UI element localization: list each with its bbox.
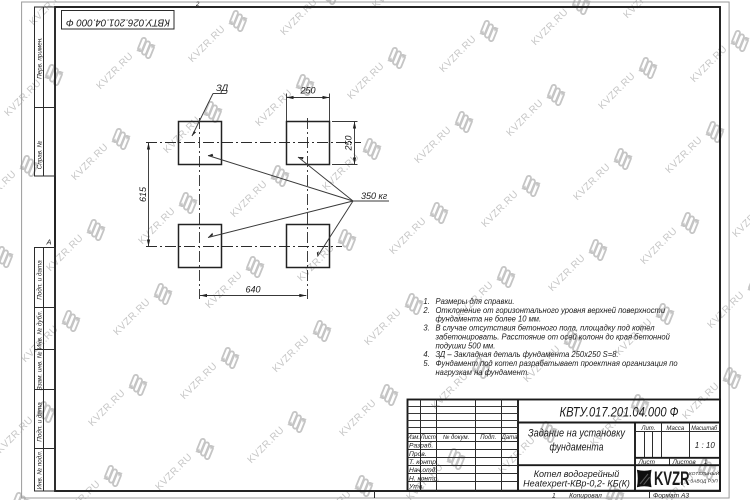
svg-text:KVZR.RU: KVZR.RU (572, 162, 613, 203)
svg-text:KVZR.RU: KVZR.RU (179, 361, 220, 402)
svg-text:KVZR.RU: KVZR.RU (204, 270, 245, 311)
svg-text:KVZR.RU: KVZR.RU (530, 7, 571, 48)
svg-text:250: 250 (344, 135, 354, 151)
svg-text:№ докум.: № докум. (443, 434, 469, 441)
svg-text:1: 1 (552, 493, 556, 500)
svg-text:Лист: Лист (419, 435, 435, 441)
svg-text:KVZR.RU: KVZR.RU (120, 0, 161, 1)
svg-text:Перв. примен.: Перв. примен. (37, 37, 44, 79)
svg-text:KVZR.RU: KVZR.RU (706, 290, 747, 331)
svg-text:KVZR.RU: KVZR.RU (70, 142, 111, 183)
svg-text:2: 2 (195, 2, 200, 8)
svg-text:Копировал: Копировал (569, 493, 602, 500)
svg-text:KVZR.RU: KVZR.RU (95, 51, 136, 92)
svg-text:KVZR.RU: KVZR.RU (622, 0, 663, 21)
svg-text:KVZR.RU: KVZR.RU (154, 452, 195, 493)
svg-text:Утв.: Утв. (408, 484, 424, 491)
svg-text:350 кг: 350 кг (361, 191, 388, 201)
svg-text:KVZR.RU: KVZR.RU (639, 226, 680, 267)
svg-text:Формат А3: Формат А3 (653, 493, 689, 500)
svg-text:Взам. инв. №: Взам. инв. № (37, 351, 44, 390)
svg-text:Пров.: Пров. (409, 451, 427, 458)
svg-text:KVZR.RU: KVZR.RU (505, 98, 546, 139)
svg-text:А: А (46, 238, 52, 247)
svg-text:KVZR.RU: KVZR.RU (254, 88, 295, 129)
svg-text:KVZR.RU: KVZR.RU (187, 24, 228, 65)
svg-text:Т. контр.: Т. контр. (409, 459, 438, 466)
svg-text:Масштаб: Масштаб (691, 426, 718, 432)
svg-text:Котел водогрейный: Котел водогрейный (534, 469, 620, 479)
svg-text:нагрузкам на фундамент.: нагрузкам на фундамент. (435, 367, 529, 377)
svg-text:Масса: Масса (666, 426, 684, 432)
svg-text:Подп. и дата: Подп. и дата (36, 402, 44, 442)
svg-text:615: 615 (138, 186, 148, 202)
svg-text:KVZR.RU: KVZR.RU (388, 216, 429, 257)
svg-text:KVZR.RU: KVZR.RU (271, 334, 312, 375)
svg-text:250: 250 (299, 86, 315, 96)
svg-text:KVZR.RU: KVZR.RU (296, 243, 337, 284)
svg-text:KVZR.RU: KVZR.RU (137, 206, 178, 247)
svg-text:Инв. № подл.: Инв. № подл. (36, 450, 44, 489)
svg-text:KVZR.RU: KVZR.RU (229, 179, 270, 220)
svg-text:KVZR.RU: KVZR.RU (112, 297, 153, 338)
svg-text:2.: 2. (422, 305, 429, 315)
svg-text:Задание на установку: Задание на установку (528, 428, 626, 440)
svg-text:KVZR.RU: KVZR.RU (480, 189, 521, 230)
svg-text:KVZR.RU: KVZR.RU (62, 479, 103, 500)
svg-text:KVZR: KVZR (654, 469, 690, 490)
svg-text:Нач.отд.: Нач.отд. (409, 466, 437, 474)
svg-text:Инв. № дубл.: Инв. № дубл. (36, 311, 44, 350)
svg-text:KVZR.RU: KVZR.RU (246, 425, 287, 466)
svg-text:640: 640 (245, 284, 260, 294)
svg-text:KVZR.RU: KVZR.RU (438, 34, 479, 75)
svg-text:KVZR.RU: KVZR.RU (681, 381, 722, 422)
svg-text:KVZR.RU: KVZR.RU (363, 307, 404, 348)
svg-text:КВТУ.017.201.04.000 Ф: КВТУ.017.201.04.000 Ф (560, 405, 679, 420)
svg-text:KVZR.RU: KVZR.RU (413, 125, 454, 166)
svg-text:KVZR.RU: KVZR.RU (731, 199, 750, 240)
svg-text:ЗАВОД РЭП: ЗАВОД РЭП (690, 479, 718, 485)
svg-text:1 : 10: 1 : 10 (695, 441, 716, 450)
svg-text:Изм.: Изм. (407, 435, 420, 441)
svg-text:Разраб.: Разраб. (409, 442, 433, 450)
svg-text:Н. контр.: Н. контр. (409, 475, 439, 482)
svg-text:Подп.: Подп. (480, 435, 496, 441)
svg-text:5.: 5. (423, 359, 429, 369)
svg-text:KVZR.RU: KVZR.RU (547, 253, 588, 294)
svg-text:KVZR.RU: KVZR.RU (87, 388, 128, 429)
svg-text:KVZR.RU: KVZR.RU (28, 0, 69, 28)
svg-text:KVZR.RU: KVZR.RU (0, 169, 19, 210)
svg-text:Подп. и дата: Подп. и дата (36, 260, 44, 300)
svg-text:3.: 3. (423, 323, 429, 333)
svg-text:Лит.: Лит. (640, 426, 655, 432)
svg-text:КВТУ.026.201.04.000 Ф: КВТУ.026.201.04.000 Ф (66, 17, 170, 29)
svg-text:KVZR.RU: KVZR.RU (0, 415, 36, 456)
svg-text:Heatexpert-КВр-0,2- КБ(К): Heatexpert-КВр-0,2- КБ(К) (523, 479, 630, 489)
svg-text:KVZR.RU: KVZR.RU (664, 135, 705, 176)
svg-text:фундамента: фундамента (550, 442, 604, 454)
svg-text:KVZR.RU: KVZR.RU (689, 44, 730, 85)
svg-text:KVZR.RU: KVZR.RU (597, 71, 638, 112)
svg-text:Дата: Дата (501, 435, 518, 441)
svg-text:Справ. №: Справ. № (37, 141, 44, 170)
svg-text:KVZR.RU: KVZR.RU (3, 78, 44, 119)
svg-text:KVZR.RU: KVZR.RU (279, 0, 320, 38)
svg-text:KVZR.RU: KVZR.RU (338, 398, 379, 439)
svg-text:ЗД: ЗД (216, 83, 229, 94)
svg-text:KVZR.RU: KVZR.RU (346, 61, 387, 102)
